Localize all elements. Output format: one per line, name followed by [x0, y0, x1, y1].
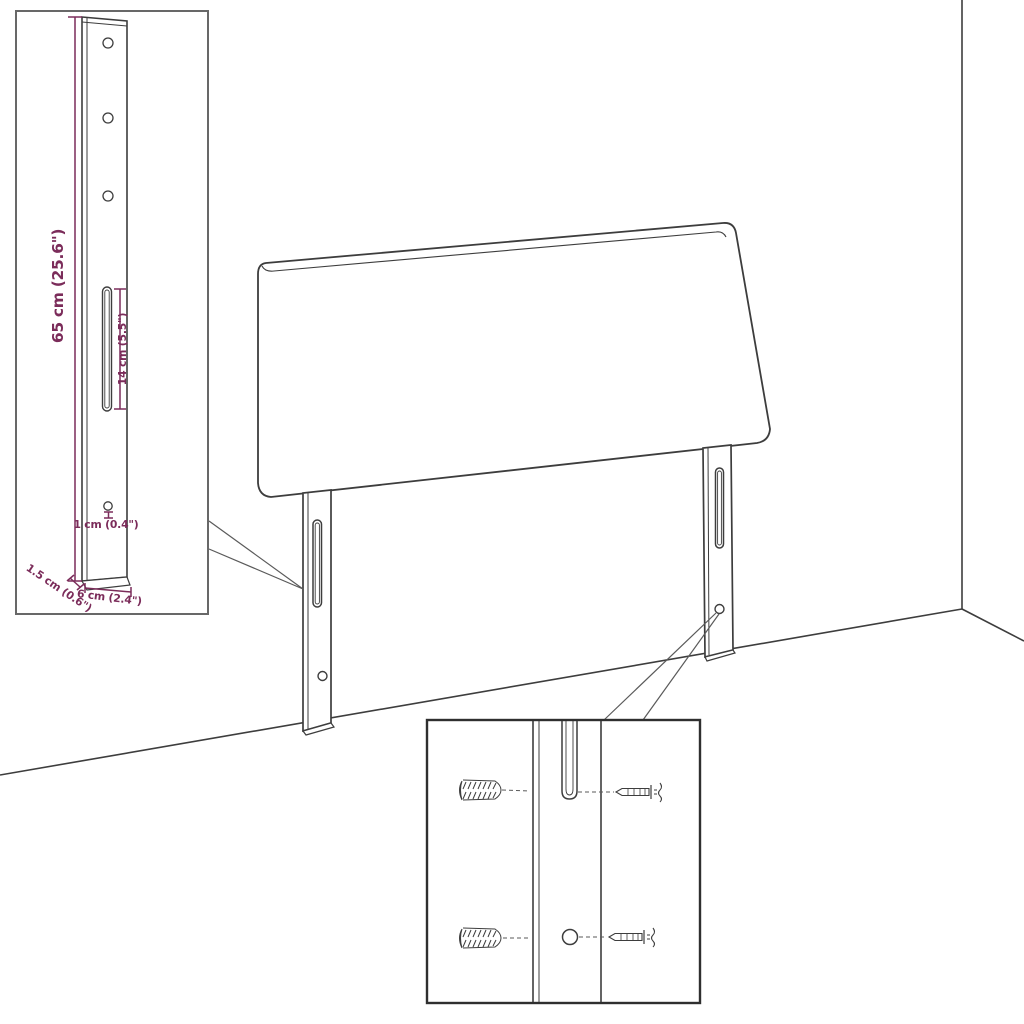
panel-face — [258, 223, 770, 497]
mounting-detail-inset — [427, 720, 700, 1003]
assembly-diagram: 65 cm (25.6") 14 cm (5.5") 1 cm (0.4") 1… — [0, 0, 1024, 1024]
headboard-panel — [258, 223, 770, 497]
left-leg-hole — [318, 672, 327, 681]
height-dimension-label: 65 cm (25.6") — [49, 229, 67, 343]
inset-leg-drawing — [82, 17, 130, 590]
callout-line-right-a — [604, 613, 716, 720]
left-leg — [303, 490, 334, 735]
floor-line-right — [962, 609, 1024, 641]
leg-dimension-inset: 65 cm (25.6") 14 cm (5.5") 1 cm (0.4") 1… — [16, 11, 208, 615]
right-leg-hole — [715, 605, 724, 614]
left-leg-face — [303, 490, 331, 731]
diagram-artwork: 65 cm (25.6") 14 cm (5.5") 1 cm (0.4") 1… — [0, 0, 1024, 1024]
hole-dimension-label: 1 cm (0.4") — [73, 518, 138, 531]
callout-line-right-b — [643, 614, 719, 720]
callout-lines — [209, 521, 719, 720]
slot-dimension-label: 14 cm (5.5") — [116, 313, 129, 385]
detail-border — [427, 720, 700, 1003]
